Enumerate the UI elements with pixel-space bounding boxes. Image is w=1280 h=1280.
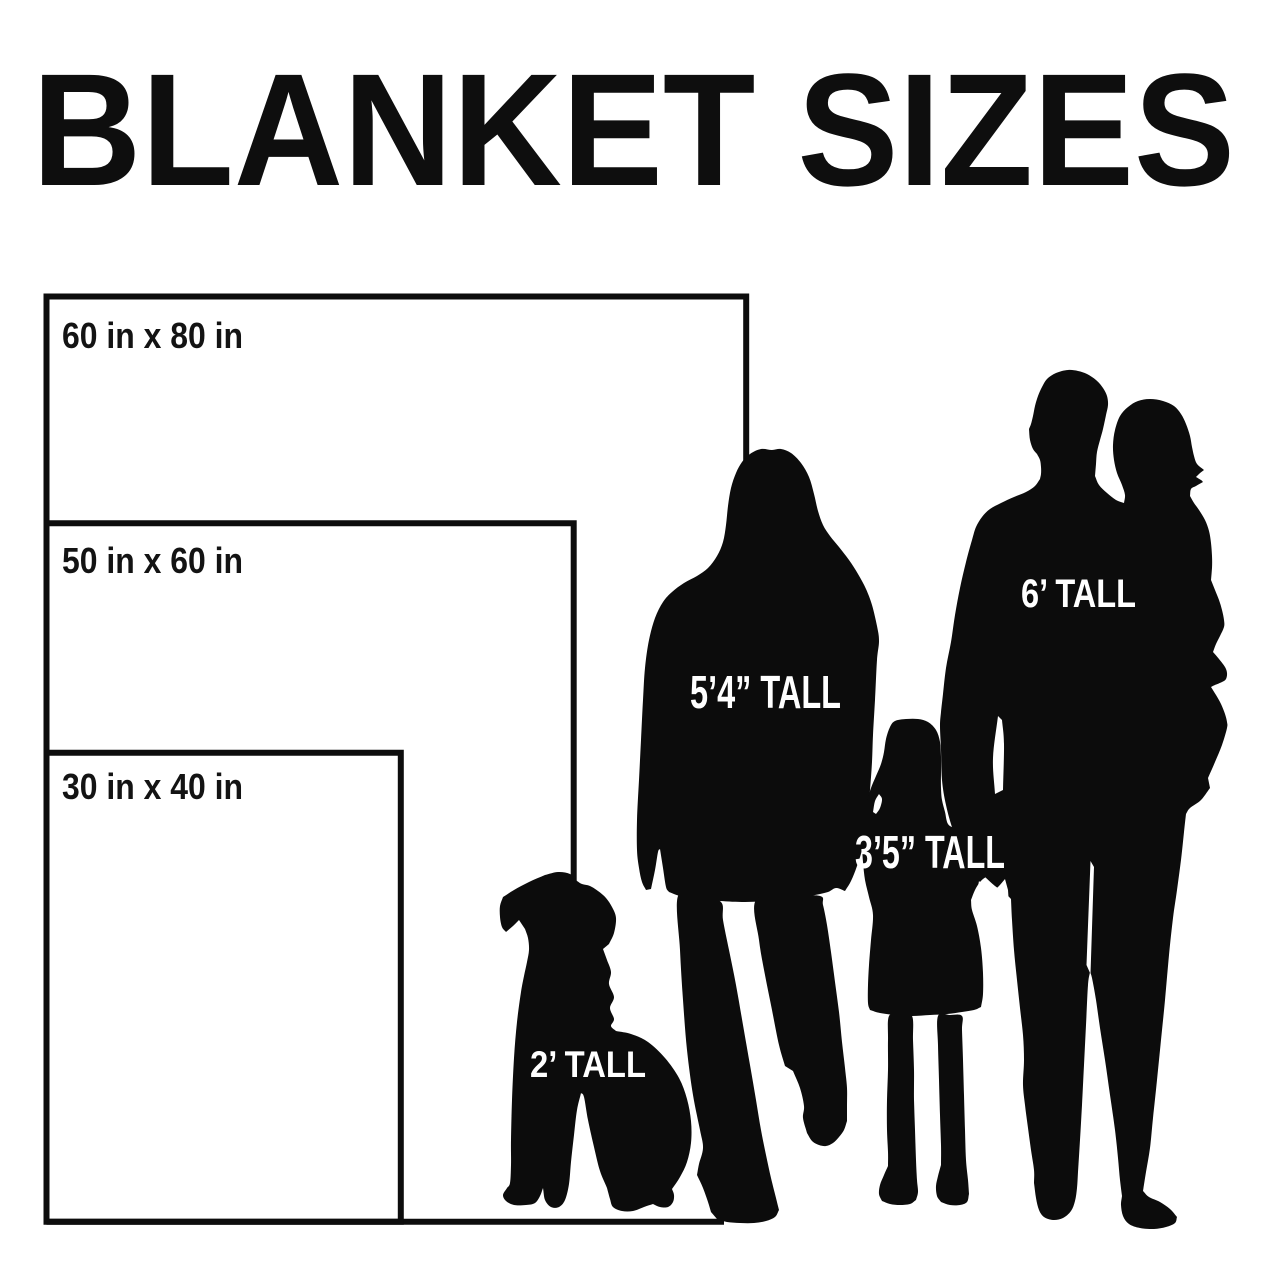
- svg-text:30 in x 40 in: 30 in x 40 in: [62, 766, 243, 807]
- svg-text:2’ TALL: 2’ TALL: [530, 1044, 646, 1085]
- svg-text:6’ TALL: 6’ TALL: [1021, 572, 1136, 616]
- svg-text:5’4” TALL: 5’4” TALL: [690, 666, 841, 718]
- svg-text:BLANKET SIZES: BLANKET SIZES: [32, 40, 1235, 219]
- svg-text:3’5” TALL: 3’5” TALL: [855, 826, 1005, 878]
- svg-text:50 in x 60 in: 50 in x 60 in: [62, 540, 243, 581]
- svg-text:60 in x 80 in: 60 in x 80 in: [62, 315, 243, 356]
